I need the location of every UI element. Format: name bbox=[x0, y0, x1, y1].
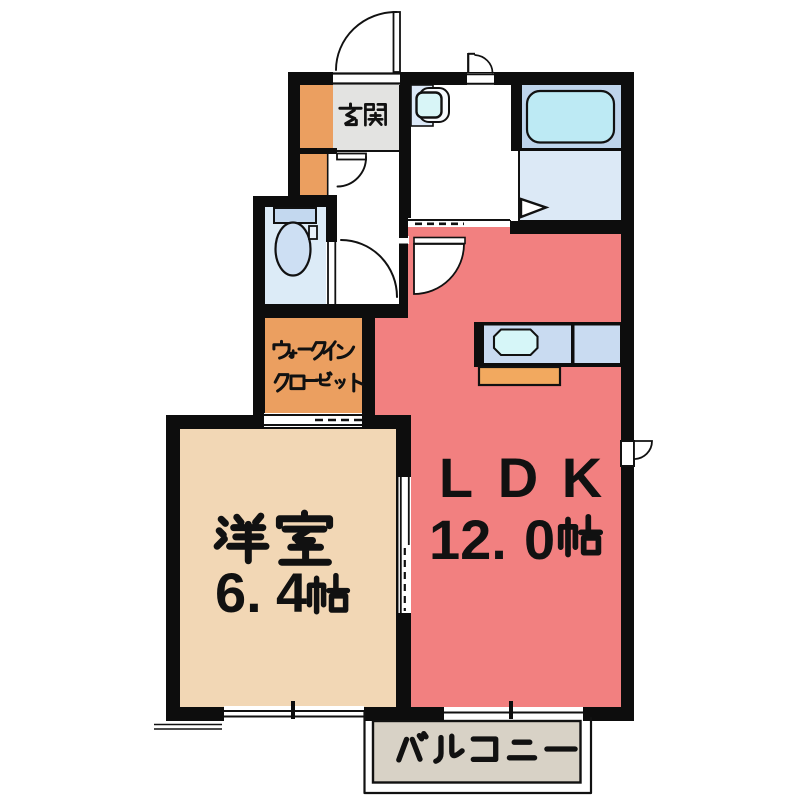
svg-text:K: K bbox=[562, 446, 602, 509]
svg-text:0: 0 bbox=[524, 508, 555, 571]
svg-text:4: 4 bbox=[276, 561, 307, 624]
svg-text:6.: 6. bbox=[215, 561, 262, 624]
svg-text:12.: 12. bbox=[429, 508, 507, 571]
svg-text:D: D bbox=[498, 446, 538, 509]
svg-text:L: L bbox=[439, 446, 473, 509]
